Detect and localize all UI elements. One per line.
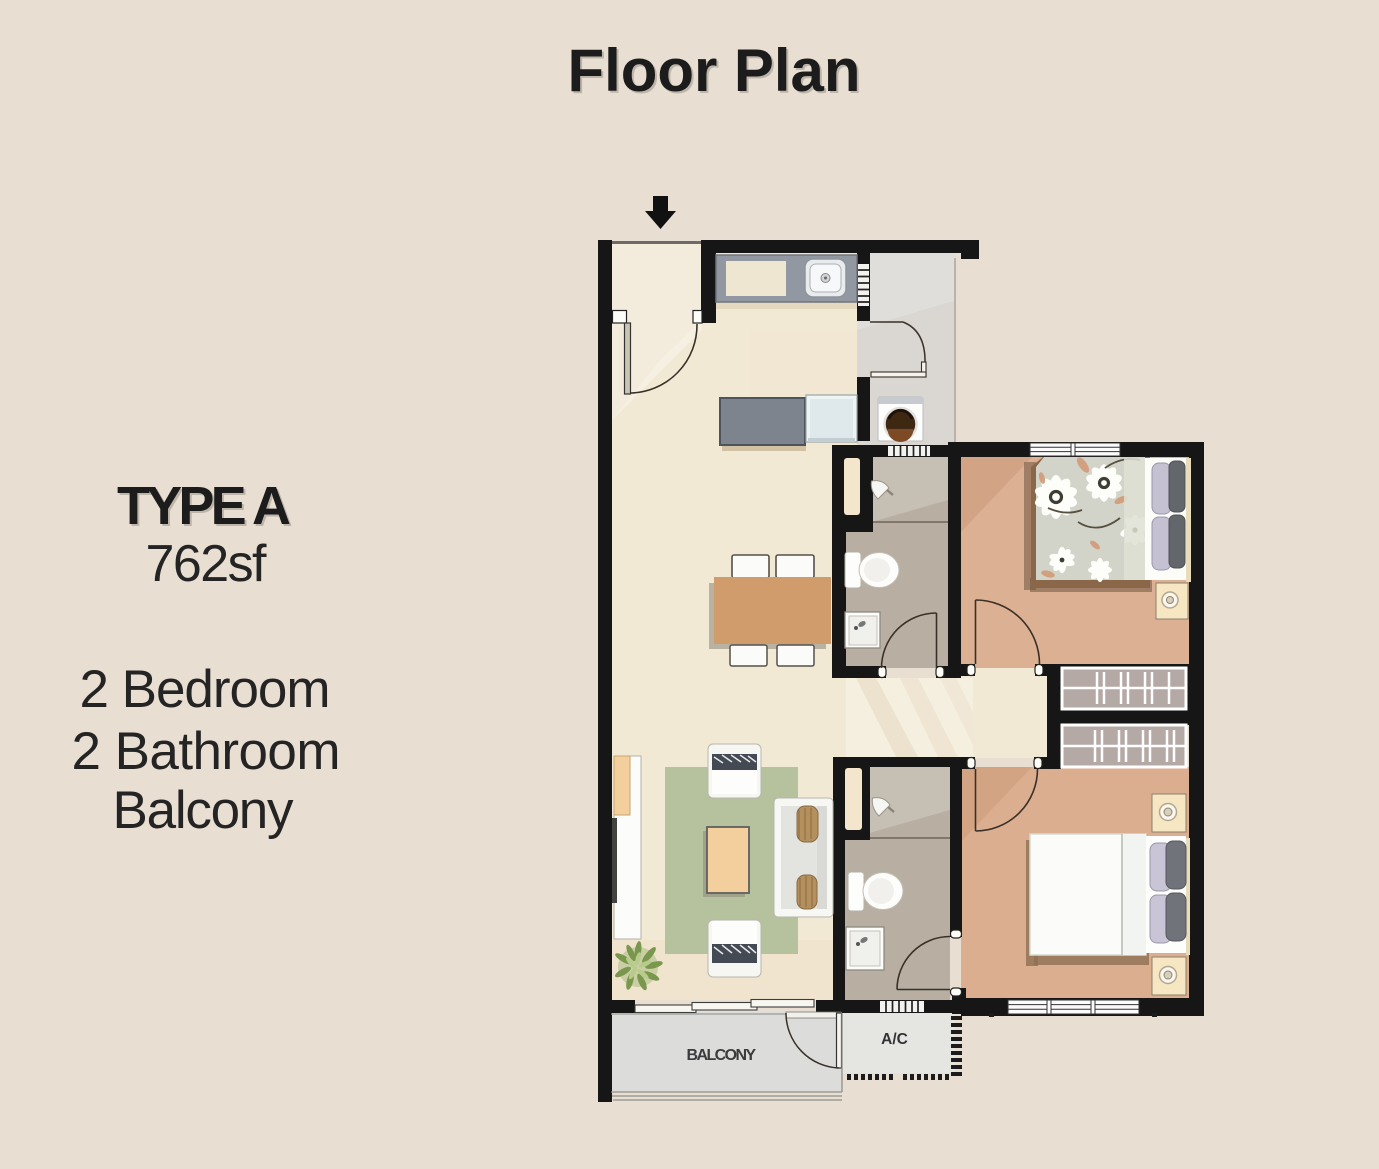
svg-text:2 Bedroom: 2 Bedroom: [80, 660, 331, 719]
svg-text:2 Bathroom: 2 Bathroom: [72, 722, 341, 781]
svg-text:A/C: A/C: [881, 1031, 908, 1048]
svg-text:Floor Plan: Floor Plan: [568, 37, 861, 104]
svg-text:762sf: 762sf: [146, 535, 268, 593]
svg-text:BALCONY: BALCONY: [687, 1047, 757, 1064]
svg-text:TYPE A: TYPE A: [117, 476, 291, 536]
svg-text:Balcony: Balcony: [113, 781, 295, 840]
